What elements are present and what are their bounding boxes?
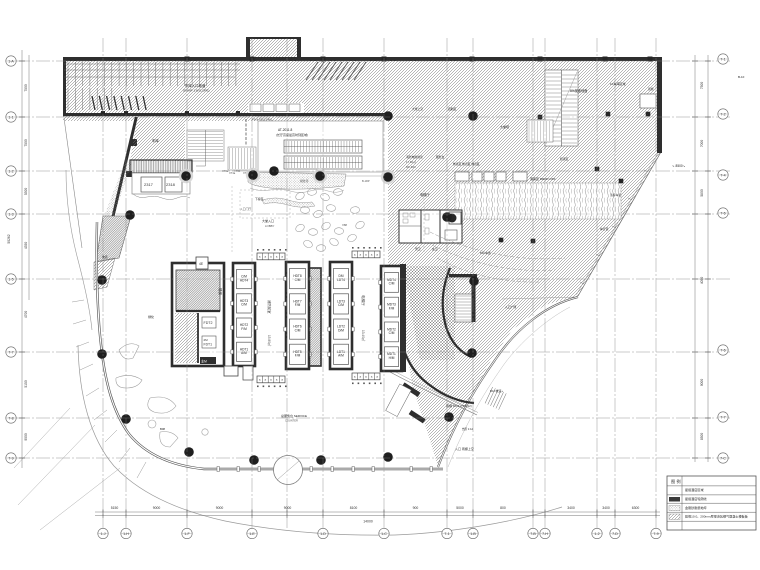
svg-text:卸货区: 卸货区 xyxy=(560,157,569,161)
svg-text:1-C: 1-C xyxy=(381,532,387,536)
svg-text:7000: 7000 xyxy=(700,140,704,148)
svg-text:LOBBY: LOBBY xyxy=(265,224,274,228)
svg-text:17.60㎡: 17.60㎡ xyxy=(406,160,416,164)
svg-text:7-H: 7-H xyxy=(542,532,548,536)
svg-text:×: × xyxy=(354,253,356,257)
svg-text:4350: 4350 xyxy=(24,242,28,250)
svg-text:×: × xyxy=(371,253,373,257)
svg-text:5150: 5150 xyxy=(24,380,28,388)
svg-text:4700: 4700 xyxy=(24,311,28,319)
svg-text:消防前室: 消防前室 xyxy=(267,300,272,314)
svg-text:4E: 4E xyxy=(199,262,204,266)
svg-text:×: × xyxy=(365,375,367,379)
svg-text:×: × xyxy=(259,255,261,259)
svg-text:大堂吧: 大堂吧 xyxy=(500,124,509,129)
svg-text:7-8: 7-8 xyxy=(8,416,13,420)
svg-text:自助区: 自助区 xyxy=(448,107,457,111)
svg-text:B-1RP: B-1RP xyxy=(362,179,370,183)
svg-text:9000: 9000 xyxy=(216,506,224,510)
svg-text:绿化: 绿化 xyxy=(148,314,154,319)
svg-text:50262: 50262 xyxy=(7,234,11,243)
svg-text:C/M: C/M xyxy=(338,303,344,307)
svg-text:FDT1: FDT1 xyxy=(204,343,213,347)
svg-text:5000: 5000 xyxy=(456,506,464,510)
svg-text:13.40㎡: 13.40㎡ xyxy=(361,330,366,342)
svg-text:绿化带: 绿化带 xyxy=(300,179,309,183)
svg-text:COUNTER: COUNTER xyxy=(285,419,298,423)
svg-text:5800: 5800 xyxy=(700,189,704,197)
svg-text:×: × xyxy=(365,253,367,257)
svg-text:B1F坡道+: B1F坡道+ xyxy=(490,388,504,393)
svg-text:男卫: 男卫 xyxy=(415,247,421,251)
svg-text:车行道: 车行道 xyxy=(600,227,609,231)
svg-text:F/M: F/M xyxy=(295,303,301,307)
svg-text:8100: 8100 xyxy=(350,506,358,510)
svg-text:入口 雨棚上空: 入口 雨棚上空 xyxy=(455,446,474,451)
svg-text:C/M: C/M xyxy=(295,278,301,282)
svg-text:1-D: 1-D xyxy=(320,532,326,536)
svg-text:入口广场: 入口广场 xyxy=(505,305,516,309)
svg-text:P3K4 P3K2 P4K1: P3K4 P3K2 P4K1 xyxy=(252,118,273,122)
svg-text:车库: 车库 xyxy=(152,138,159,143)
svg-text:7-7: 7-7 xyxy=(720,415,725,419)
svg-text:D/M: D/M xyxy=(338,328,344,332)
svg-text:MF-B1F: MF-B1F xyxy=(406,165,416,169)
svg-text:图 例: 图 例 xyxy=(671,478,681,485)
svg-text:7-C: 7-C xyxy=(720,456,726,460)
svg-text:×: × xyxy=(264,255,266,259)
svg-text:7500: 7500 xyxy=(700,82,704,90)
svg-text:7-6: 7-6 xyxy=(720,348,725,352)
svg-text:女卫: 女卫 xyxy=(432,247,438,251)
svg-text:×: × xyxy=(371,375,373,379)
svg-text:H/M: H/M xyxy=(389,356,395,360)
svg-text:×: × xyxy=(376,253,378,257)
svg-text:1-B: 1-B xyxy=(470,532,476,536)
svg-text:总服务台 SERVICE: 总服务台 SERVICE xyxy=(281,413,307,418)
svg-text:2317: 2317 xyxy=(144,182,154,187)
svg-text:1-A: 1-A xyxy=(8,59,14,63)
svg-text:下客区: 下客区 xyxy=(255,197,264,201)
svg-text:×: × xyxy=(259,378,261,382)
svg-text:×: × xyxy=(281,255,283,259)
svg-text:F/M: F/M xyxy=(241,327,247,331)
svg-text:×: × xyxy=(270,378,272,382)
svg-text:服务台: 服务台 xyxy=(436,155,445,159)
svg-text:入口门厅: 入口门厅 xyxy=(240,207,251,211)
svg-text:C/M: C/M xyxy=(389,282,395,286)
svg-text:大堂入口: 大堂入口 xyxy=(262,218,274,223)
svg-text:×: × xyxy=(276,255,278,259)
svg-text:休息区 休息区 休息区: 休息区 休息区 休息区 xyxy=(453,162,480,166)
svg-text:大堂上空: 大堂上空 xyxy=(412,107,423,111)
svg-text:电梯厅: 电梯厅 xyxy=(420,192,430,197)
svg-text:3400: 3400 xyxy=(567,506,575,510)
svg-text:1-E: 1-E xyxy=(249,532,255,536)
svg-text:9000: 9000 xyxy=(153,506,161,510)
svg-text:7500: 7500 xyxy=(24,139,28,147)
svg-text:(长厅高度最高时刻区域): (长厅高度最高时刻区域) xyxy=(276,132,308,137)
svg-text:雨棚 MC1 (750112): 雨棚 MC1 (750112) xyxy=(446,403,472,408)
svg-text:1-2: 1-2 xyxy=(594,532,599,536)
svg-text:楼梯: 楼梯 xyxy=(218,288,223,295)
svg-text:坡道: 坡道 xyxy=(102,255,108,259)
svg-text:货梯: 货梯 xyxy=(648,87,654,91)
svg-text:×: × xyxy=(359,375,361,379)
svg-text:×: × xyxy=(354,375,356,379)
svg-text:星级酒店轮廓线: 星级酒店轮廓线 xyxy=(685,496,707,501)
svg-text:电梯厅: 电梯厅 xyxy=(361,295,366,306)
svg-text:15.80㎡: 15.80㎡ xyxy=(267,335,272,347)
svg-text:14000: 14000 xyxy=(363,520,373,524)
svg-text:5300: 5300 xyxy=(24,188,28,196)
svg-text:X88: X88 xyxy=(342,223,347,227)
svg-text:LDT4: LDT4 xyxy=(337,278,345,282)
svg-text:7500: 7500 xyxy=(24,84,28,92)
svg-text:3400: 3400 xyxy=(602,506,610,510)
svg-text:∿ 8500↘: ∿ 8500↘ xyxy=(672,164,686,168)
svg-text:1-1: 1-1 xyxy=(8,115,13,119)
svg-text:落客车道: 落客车道 xyxy=(610,193,621,197)
svg-text:7-6: 7-6 xyxy=(720,211,725,215)
svg-text:F/M: F/M xyxy=(389,306,395,310)
svg-text:2318: 2318 xyxy=(166,182,176,187)
svg-text:9000: 9000 xyxy=(24,433,28,441)
svg-text:7-D: 7-D xyxy=(612,532,618,536)
svg-text:B-1F: B-1F xyxy=(738,75,745,79)
svg-text:×: × xyxy=(359,253,361,257)
svg-text:AT-2011.8: AT-2011.8 xyxy=(278,128,292,132)
svg-text:1-H: 1-H xyxy=(123,532,129,536)
svg-text:主M: 主M xyxy=(201,359,207,364)
svg-text:车库入口坡道: 车库入口坡道 xyxy=(185,83,206,88)
svg-text:7-1: 7-1 xyxy=(720,57,725,61)
svg-text:星级酒店区域: 星级酒店区域 xyxy=(685,487,704,492)
svg-text:900: 900 xyxy=(413,506,419,510)
svg-text:F/M: F/M xyxy=(295,354,301,358)
svg-text:9000: 9000 xyxy=(284,506,292,510)
svg-text:7-9: 7-9 xyxy=(653,532,658,536)
svg-text:C/M: C/M xyxy=(295,328,301,332)
svg-text:台阶 1:12: 台阶 1:12 xyxy=(462,427,474,431)
svg-text:1-2: 1-2 xyxy=(8,169,13,173)
svg-text:9000: 9000 xyxy=(700,379,704,387)
svg-text:消防电梯前室: 消防电梯前室 xyxy=(406,155,423,159)
svg-text:7-4: 7-4 xyxy=(720,173,725,177)
svg-text:建筑10.0、200mm厚现浇瓦钢气混凝土楼板板: 建筑10.0、200mm厚现浇瓦钢气混凝土楼板板 xyxy=(685,514,748,519)
svg-text:C/M: C/M xyxy=(389,331,395,335)
svg-text:×: × xyxy=(281,378,283,382)
svg-text:金刚砂耐磨地坪: 金刚砂耐磨地坪 xyxy=(685,505,707,510)
svg-text:7-7: 7-7 xyxy=(8,350,13,354)
svg-text:×: × xyxy=(264,378,266,382)
svg-text:7-2: 7-2 xyxy=(720,112,725,116)
svg-text:800: 800 xyxy=(500,506,506,510)
svg-text:B08: B08 xyxy=(160,427,165,431)
svg-text:1F车库区域: 1F车库区域 xyxy=(610,81,626,86)
svg-text:7-1: 7-1 xyxy=(444,532,449,536)
svg-text:7-B: 7-B xyxy=(530,532,536,536)
svg-text:×: × xyxy=(270,255,272,259)
svg-text:落客区 DROP-OFF: 落客区 DROP-OFF xyxy=(530,176,556,181)
svg-text:7-9: 7-9 xyxy=(8,456,13,460)
svg-text:A/M: A/M xyxy=(338,354,344,358)
svg-text:1-J: 1-J xyxy=(101,532,106,536)
svg-text:4050: 4050 xyxy=(700,277,704,285)
svg-text:FDT2: FDT2 xyxy=(204,321,213,325)
svg-text:×: × xyxy=(376,375,378,379)
svg-text:5150: 5150 xyxy=(111,506,119,510)
svg-text:2M: 2M xyxy=(204,338,209,342)
svg-text:1-3: 1-3 xyxy=(8,212,13,216)
svg-text:5%找坡地面: 5%找坡地面 xyxy=(570,88,587,93)
svg-text:B1F车道: B1F车道 xyxy=(480,251,491,255)
svg-text:×: × xyxy=(276,378,278,382)
svg-text:1-F: 1-F xyxy=(184,532,190,536)
svg-text:8500: 8500 xyxy=(700,433,704,441)
svg-text:1-5: 1-5 xyxy=(8,277,13,281)
svg-text:6300: 6300 xyxy=(632,506,640,510)
svg-text:C/M: C/M xyxy=(241,303,247,307)
